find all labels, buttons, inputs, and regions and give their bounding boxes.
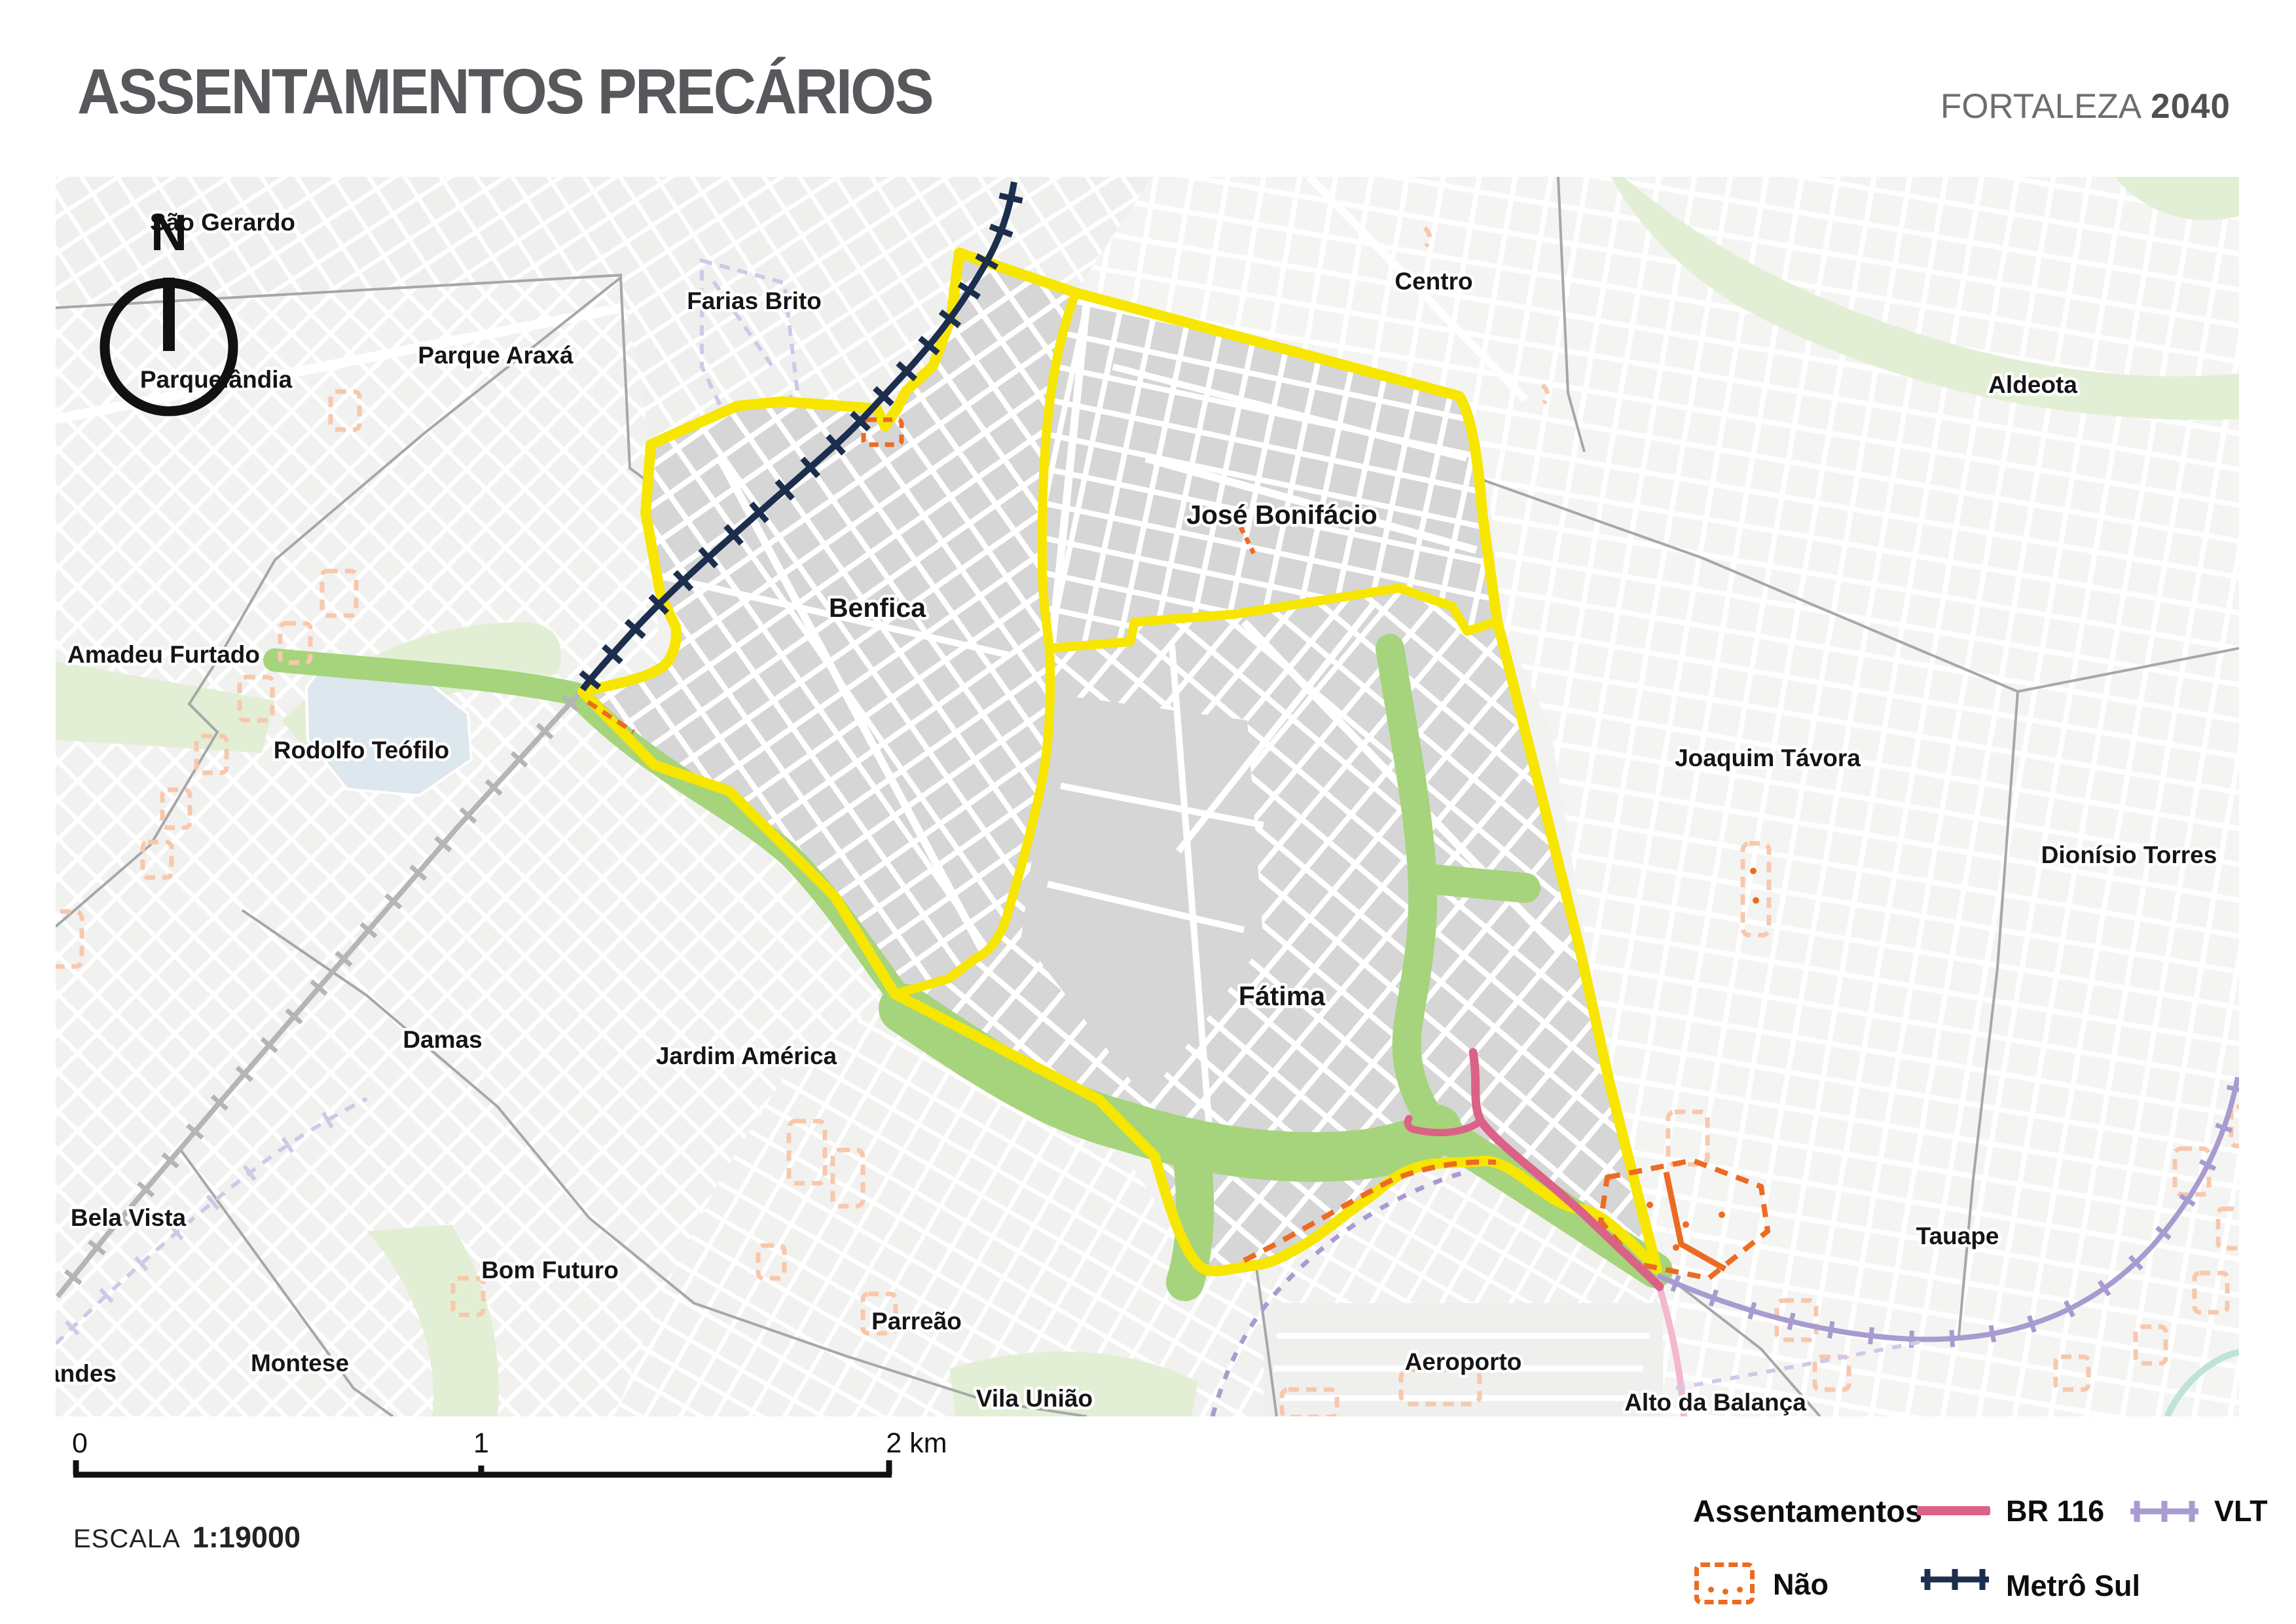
- map-label: Tauape: [1916, 1223, 1999, 1249]
- metro-swatch: [1917, 1566, 1993, 1593]
- map-label: Benfica: [829, 593, 926, 623]
- map-label: Damas: [403, 1026, 482, 1053]
- map-label: Dionísio Torres: [2041, 841, 2217, 868]
- map-label: Bom Futuro: [481, 1257, 619, 1283]
- rail-tick: [1991, 1325, 1994, 1342]
- map-label: Bela Vista: [71, 1204, 187, 1231]
- map-label: Alto da Balança: [1624, 1389, 1806, 1416]
- rail-tick: [1870, 1327, 1872, 1344]
- rail-tick: [1952, 1330, 1953, 1347]
- map-label: Farias Brito: [687, 287, 822, 314]
- page-title: ASSENTAMENTOS PRECÁRIOS: [77, 55, 932, 128]
- brand-mark: FORTALEZA2040: [1941, 86, 2231, 126]
- brand-city: FORTALEZA: [1941, 87, 2141, 126]
- scale-bar: [71, 1455, 896, 1481]
- brand-year: 2040: [2151, 87, 2231, 126]
- legend-br116-label: BR 116: [2006, 1494, 2104, 1528]
- map-canvas: São GerardoFarias BritoParque AraxáParqu…: [56, 177, 2239, 1416]
- br116-swatch: [1917, 1506, 1990, 1515]
- city-map: São GerardoFarias BritoParque AraxáParqu…: [56, 177, 2239, 1416]
- map-label: Montese: [251, 1350, 349, 1376]
- nao-swatch: [1694, 1562, 1755, 1604]
- legend-metro-label: Metrô Sul: [2006, 1569, 2140, 1603]
- compass-needle: [163, 278, 175, 351]
- map-label: Aeroporto: [1405, 1348, 1522, 1375]
- map-label: Joaquim Távora: [1675, 745, 1861, 771]
- legend-vlt-label: VLT: [2214, 1494, 2268, 1528]
- map-label: Amadeu Furtado: [67, 641, 260, 668]
- legend-title: Assentamentos: [1693, 1493, 1922, 1529]
- legend-nao-label: Não: [1773, 1568, 1829, 1602]
- escala-label: ESCALA: [73, 1524, 181, 1553]
- map-label: Centro: [1394, 268, 1472, 295]
- vlt-swatch: [2126, 1498, 2202, 1524]
- map-label: Aldeota: [1988, 371, 2077, 398]
- rail-tick: [1829, 1321, 1832, 1338]
- map-label: Vila União: [976, 1385, 1093, 1412]
- poster-page: ASSENTAMENTOS PRECÁRIOS FORTALEZA2040: [0, 0, 2296, 1624]
- scale-ratio: ESCALA1:19000: [73, 1521, 301, 1555]
- map-label: Parque Araxá: [418, 342, 574, 369]
- compass: N: [98, 196, 242, 419]
- compass-n-label: N: [151, 204, 187, 261]
- map-label: José Bonifácio: [1186, 500, 1377, 530]
- map-label: o Fernandes: [56, 1360, 117, 1387]
- map-label: Rodolfo Teófilo: [274, 737, 450, 764]
- map-label: Jardim América: [656, 1043, 837, 1069]
- map-label: Parreão: [871, 1308, 962, 1335]
- escala-value: 1:19000: [192, 1521, 301, 1554]
- map-label: Fátima: [1239, 981, 1326, 1011]
